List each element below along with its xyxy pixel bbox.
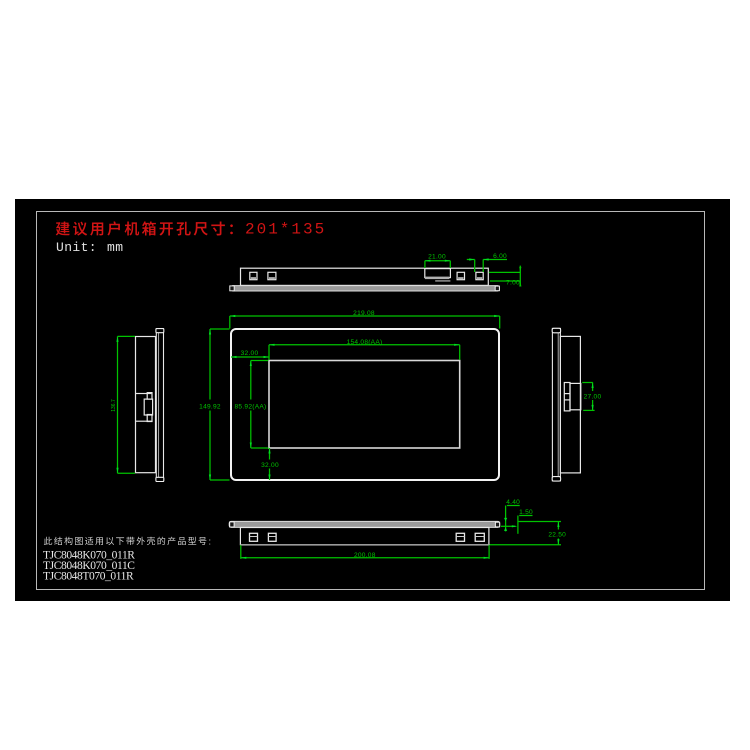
svg-text:4.40: 4.40 [506, 499, 520, 506]
svg-text:201*135: 201*135 [245, 221, 326, 239]
svg-text::: : [209, 536, 212, 546]
svg-text:21.00: 21.00 [428, 253, 446, 260]
svg-text:200.08: 200.08 [354, 552, 376, 559]
svg-text:32.00: 32.00 [261, 462, 279, 469]
svg-text:219.08: 219.08 [353, 310, 375, 317]
svg-text:85.92(AA): 85.92(AA) [235, 403, 267, 410]
svg-text:6.00: 6.00 [493, 253, 507, 260]
svg-text:1.50: 1.50 [519, 509, 533, 516]
svg-text:154.08(AA): 154.08(AA) [347, 339, 383, 346]
svg-text:32.00: 32.00 [241, 350, 259, 357]
svg-text:TJC8048T070_011R: TJC8048T070_011R [43, 570, 134, 582]
svg-text:136.7: 136.7 [111, 399, 117, 412]
svg-text:27.00: 27.00 [584, 393, 602, 400]
svg-text:22.50: 22.50 [548, 532, 566, 539]
svg-text:149.92: 149.92 [199, 403, 221, 410]
svg-text:mm: mm [107, 240, 123, 255]
svg-text:Unit:: Unit: [56, 240, 97, 255]
svg-text:7.00: 7.00 [506, 280, 520, 287]
